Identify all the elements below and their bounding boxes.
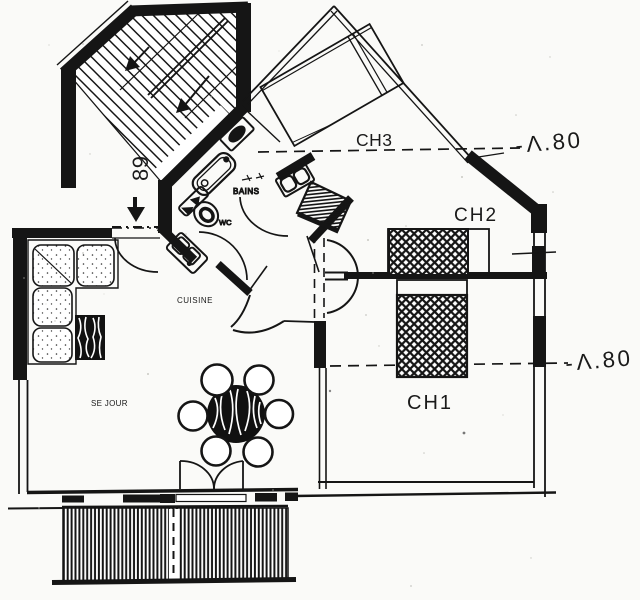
svg-text:Λ.80: Λ.80	[525, 127, 583, 157]
svg-text:89: 89	[128, 156, 153, 181]
svg-text:CH1: CH1	[407, 392, 453, 414]
svg-text:CH3: CH3	[356, 130, 393, 150]
svg-text:SE JOUR: SE JOUR	[91, 399, 128, 408]
svg-text:BAINS: BAINS	[233, 187, 260, 196]
svg-text:WC: WC	[219, 218, 232, 227]
svg-text:CH2: CH2	[454, 205, 498, 226]
svg-text:Λ.80: Λ.80	[575, 345, 633, 375]
svg-text:CUISINE: CUISINE	[177, 296, 213, 305]
